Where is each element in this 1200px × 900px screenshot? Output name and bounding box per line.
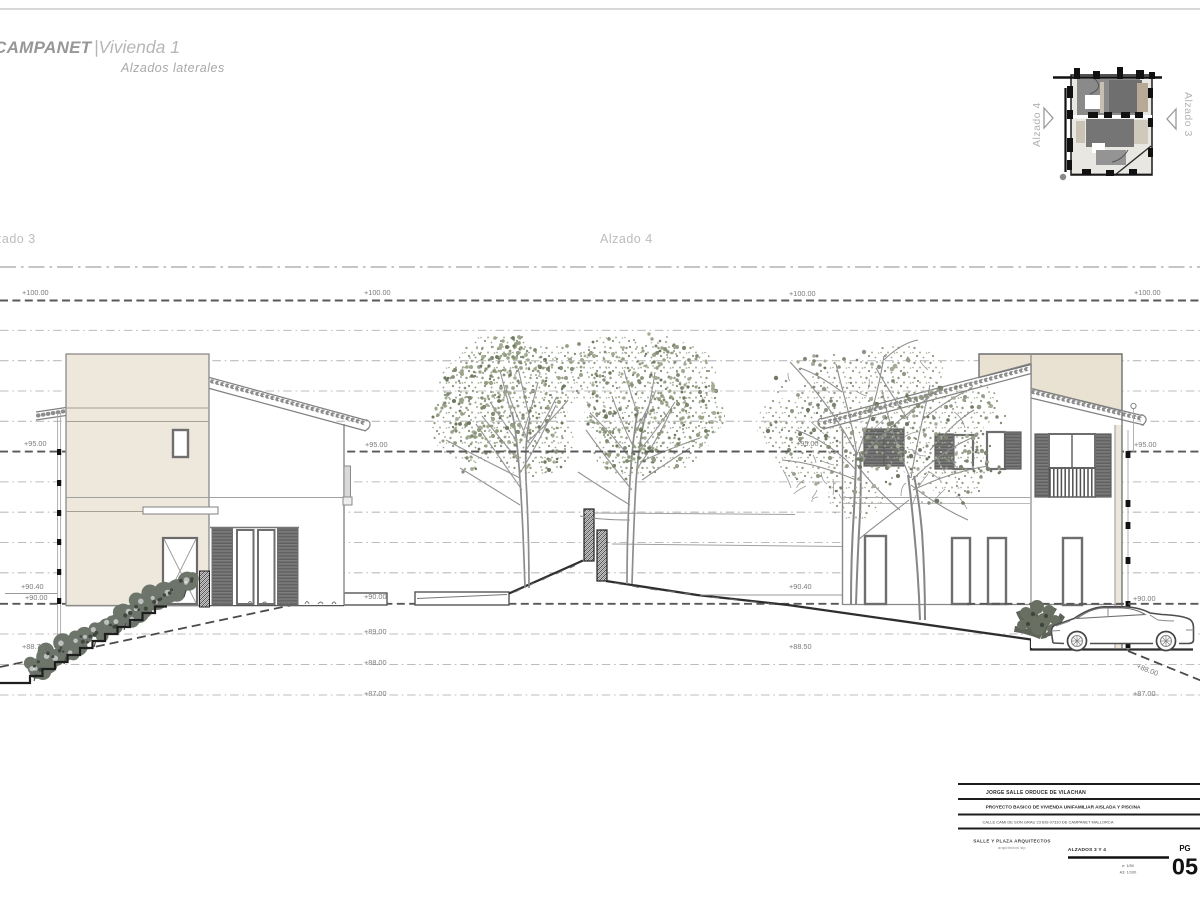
svg-text:+90.40: +90.40 [21, 582, 44, 591]
svg-text:arquitectos slp: arquitectos slp [998, 846, 1026, 850]
svg-text:+100.00: +100.00 [364, 288, 391, 297]
svg-text:+90.00: +90.00 [1133, 594, 1156, 603]
svg-text:+90.40: +90.40 [789, 582, 812, 591]
svg-text:Alzados laterales: Alzados laterales [120, 61, 225, 75]
svg-text:+95.00: +95.00 [796, 439, 819, 448]
svg-text:+95.00: +95.00 [1134, 440, 1157, 449]
svg-text:+95.00: +95.00 [365, 440, 388, 449]
svg-text:+87.00: +87.00 [1133, 689, 1156, 698]
svg-text:+100.00: +100.00 [22, 288, 49, 297]
svg-text:+88.50: +88.50 [789, 642, 812, 651]
svg-text:+90.00: +90.00 [25, 593, 48, 602]
svg-text:+88.00: +88.00 [364, 658, 387, 667]
svg-text:PROYECTO BASICO DE VIVIENDA UN: PROYECTO BASICO DE VIVIENDA UNIFAMILIAR … [986, 805, 1141, 810]
svg-text:Alzado 3: Alzado 3 [1182, 92, 1194, 137]
svg-text:+89.00: +89.00 [364, 627, 387, 636]
svg-text:A3: 1/100: A3: 1/100 [1120, 870, 1137, 875]
svg-text:+100.00: +100.00 [789, 289, 816, 298]
svg-text:|Vivienda 1: |Vivienda 1 [94, 37, 180, 57]
svg-text:e: 1/50: e: 1/50 [1122, 863, 1135, 868]
svg-text:+88.70: +88.70 [22, 642, 45, 651]
svg-text:+100.00: +100.00 [1134, 288, 1161, 297]
svg-text:JORGE SALLE ORDUCE DE VILACHAN: JORGE SALLE ORDUCE DE VILACHAN [986, 790, 1086, 796]
svg-text:CAMPANET: CAMPANET [0, 38, 93, 57]
svg-text:ALZADOS 3 Y 4: ALZADOS 3 Y 4 [1068, 847, 1106, 853]
svg-text:Alzado 4: Alzado 4 [1031, 102, 1043, 147]
svg-text:05: 05 [1172, 854, 1198, 880]
svg-text:SALLE Y PLAZA ARQUITECTOS: SALLE Y PLAZA ARQUITECTOS [973, 839, 1051, 844]
svg-text:+90.00: +90.00 [364, 592, 387, 601]
svg-text:Alzado 4: Alzado 4 [600, 232, 653, 246]
svg-text:+95.00: +95.00 [24, 439, 47, 448]
svg-text:PG: PG [1179, 844, 1190, 853]
svg-text:CALLE CAMI DE SON GRAU 23 BIS: CALLE CAMI DE SON GRAU 23 BIS 07310 DE C… [982, 820, 1113, 825]
svg-text:Alzado 3: Alzado 3 [0, 232, 36, 246]
svg-text:+87.00: +87.00 [364, 689, 387, 698]
